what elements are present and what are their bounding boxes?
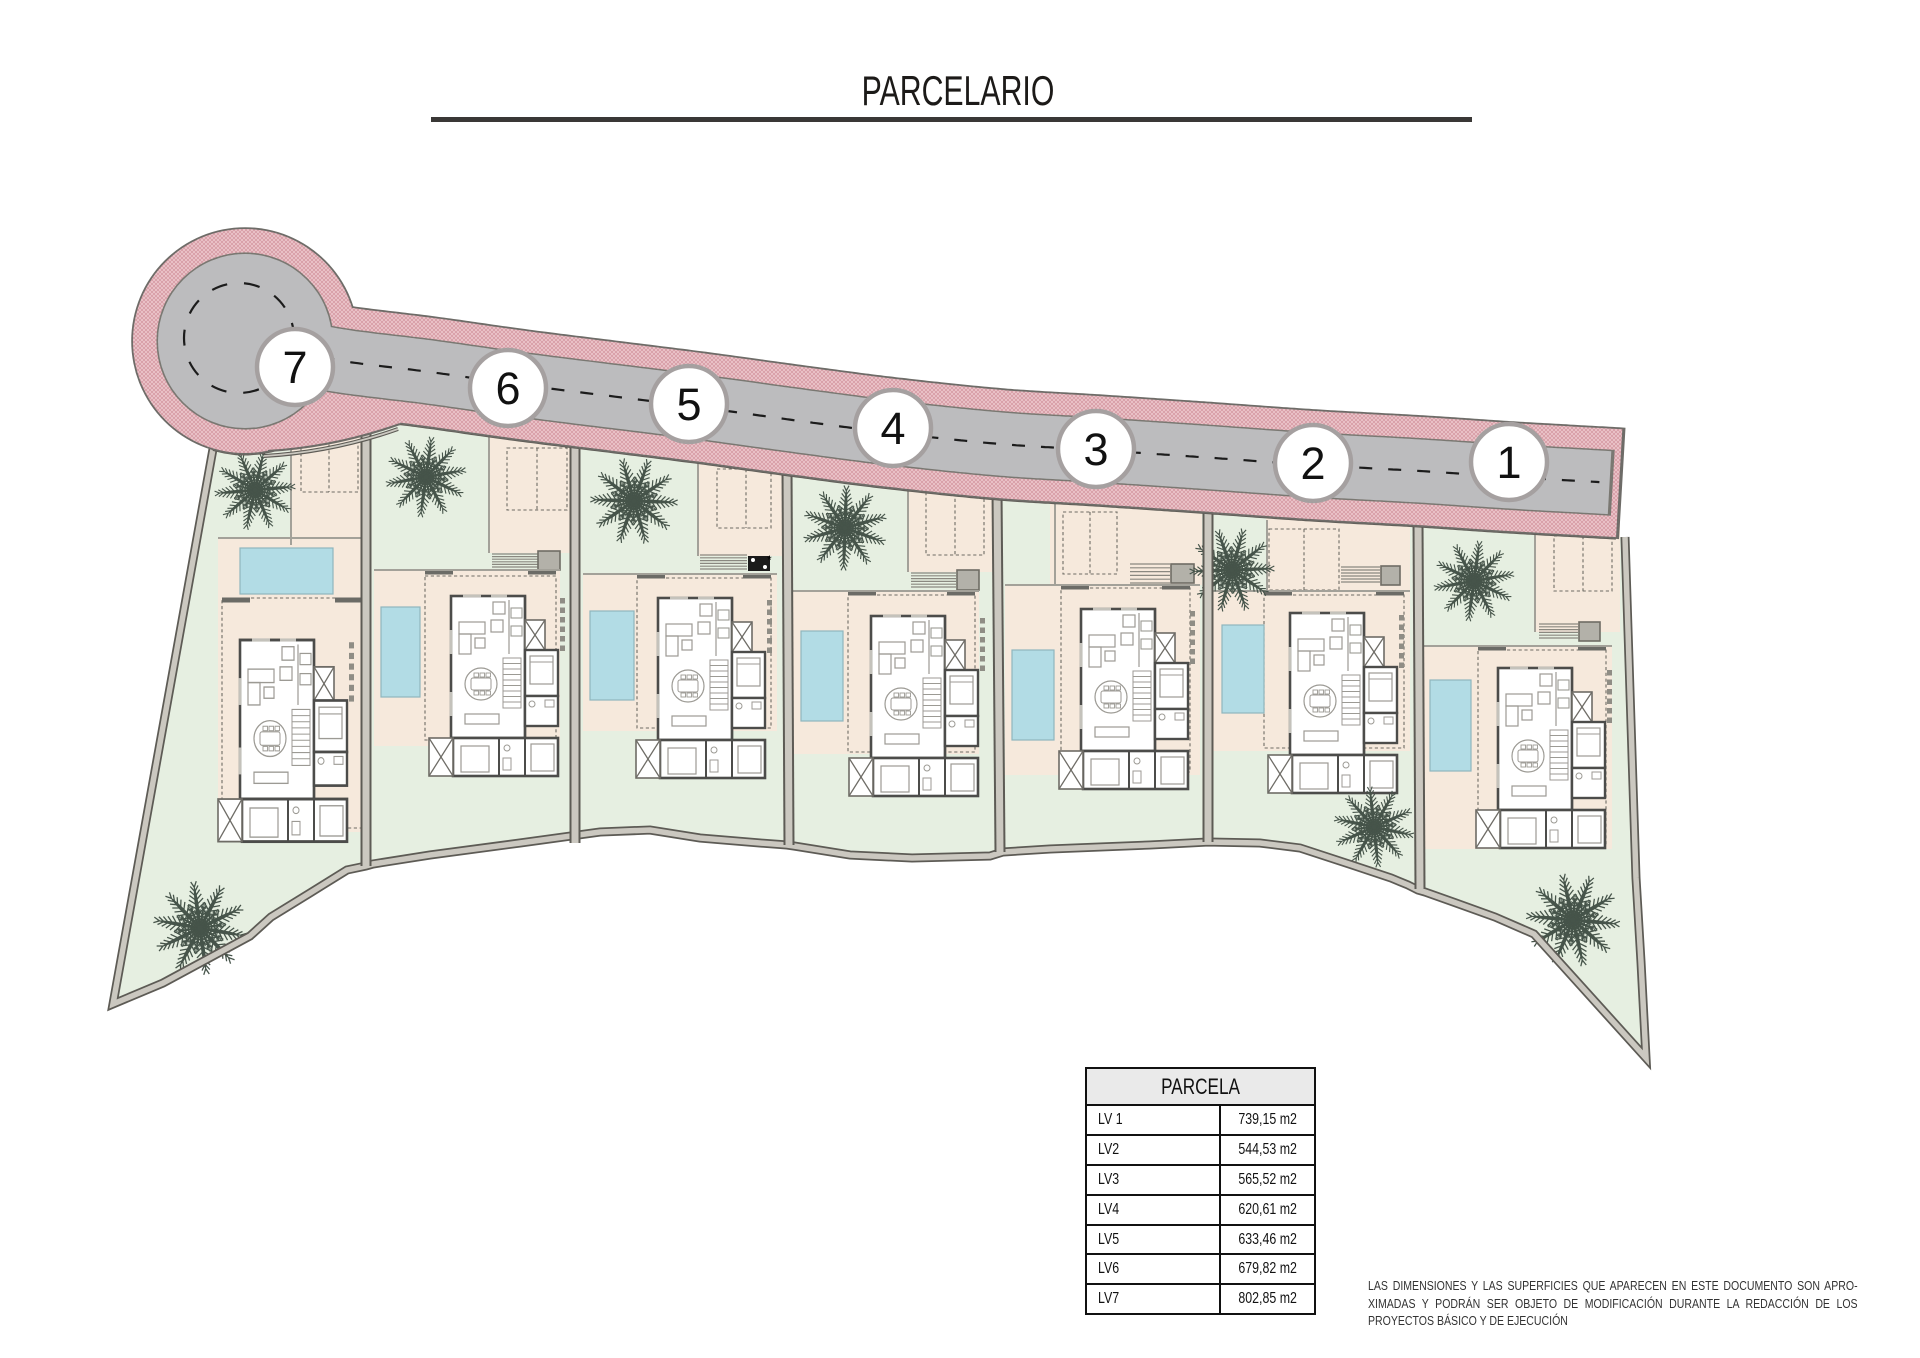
svg-text:6: 6 (495, 363, 520, 414)
svg-text:2: 2 (1300, 438, 1325, 489)
svg-text:7: 7 (282, 342, 307, 393)
svg-text:3: 3 (1083, 424, 1108, 475)
svg-text:1: 1 (1496, 437, 1521, 488)
svg-text:5: 5 (676, 379, 701, 430)
svg-text:4: 4 (880, 403, 905, 454)
svg-text:*: * (767, 553, 772, 567)
